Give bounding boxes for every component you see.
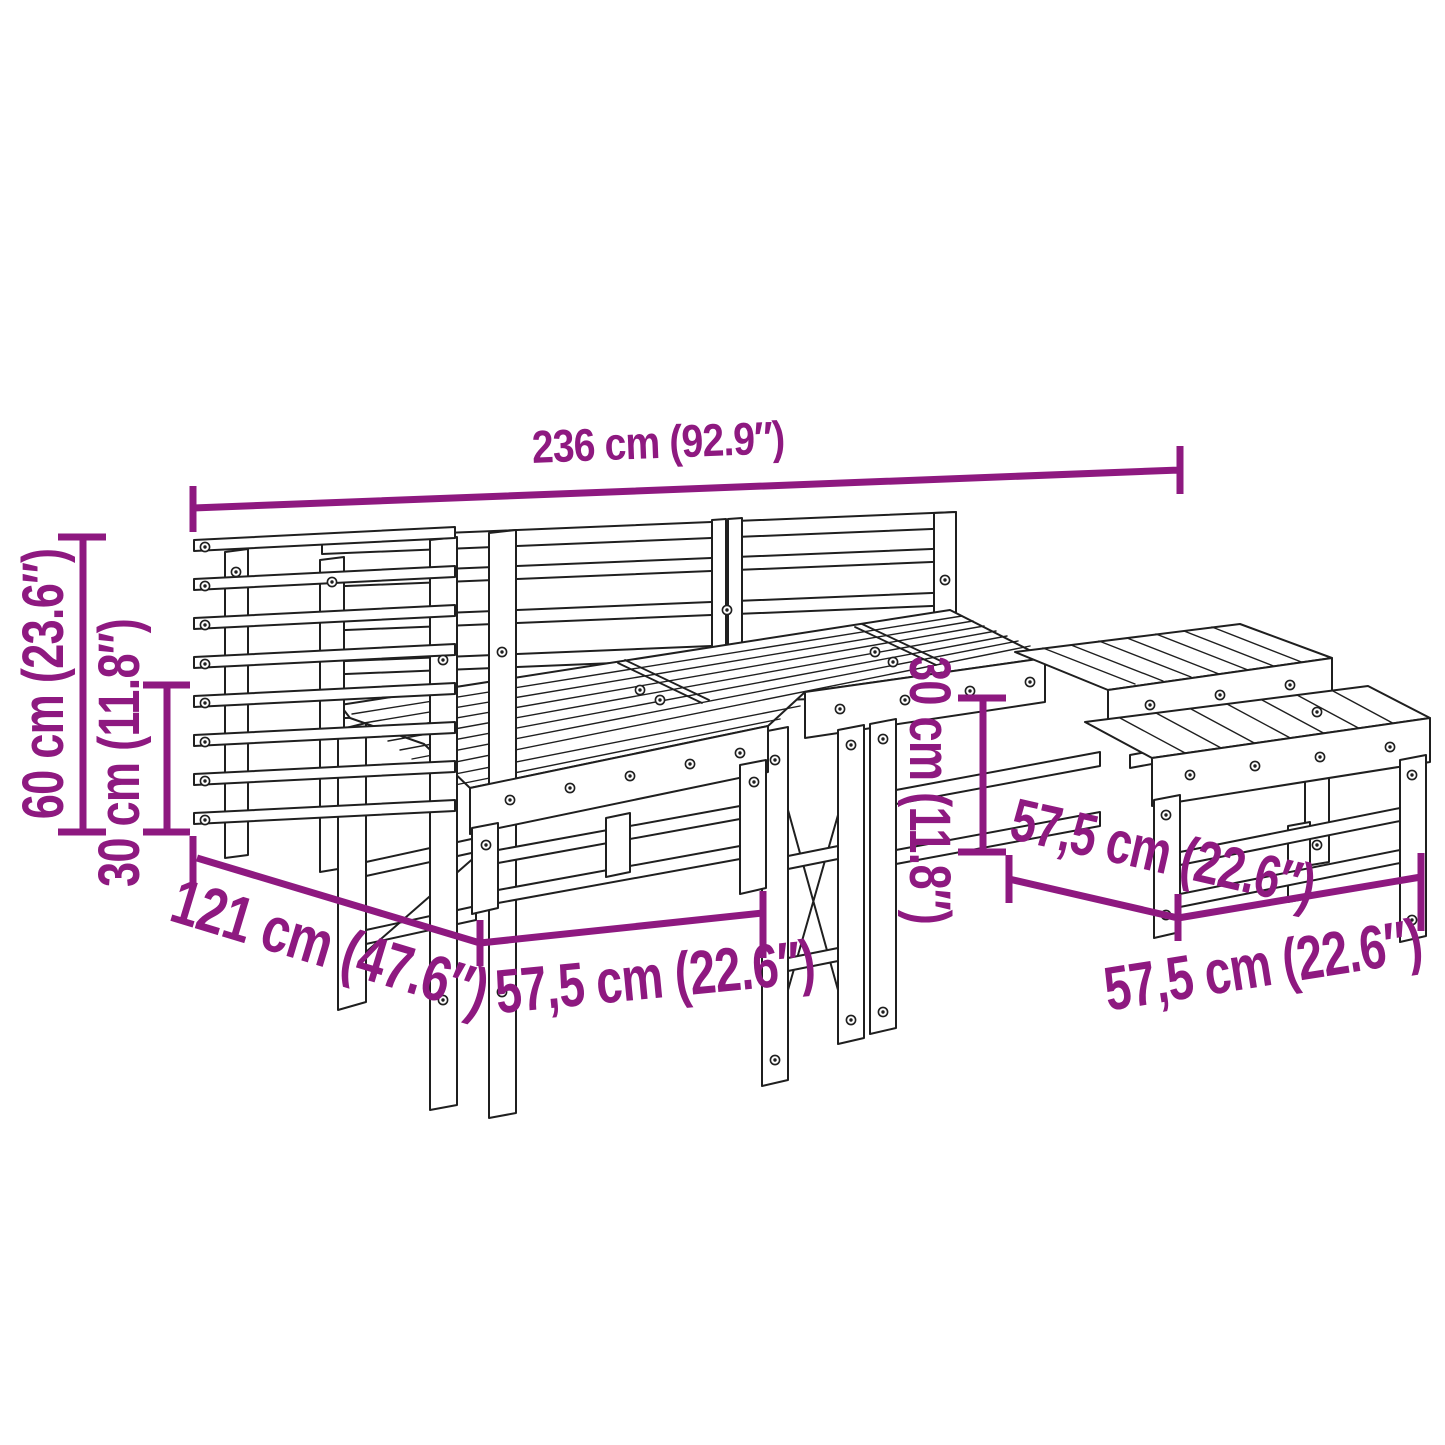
dim-label-seat-height: 30 cm (11.8″) bbox=[91, 619, 149, 887]
dim-label-overall-width: 236 cm (92.9″) bbox=[531, 414, 785, 470]
dim-label-footstool-height: 30 cm (11.8″) bbox=[900, 656, 958, 924]
furniture-line-drawing bbox=[0, 0, 1445, 1445]
dim-label-overall-height: 60 cm (23.6″) bbox=[15, 549, 73, 820]
diagram-canvas: 236 cm (92.9″) 60 cm (23.6″) 30 cm (11.8… bbox=[0, 0, 1445, 1445]
